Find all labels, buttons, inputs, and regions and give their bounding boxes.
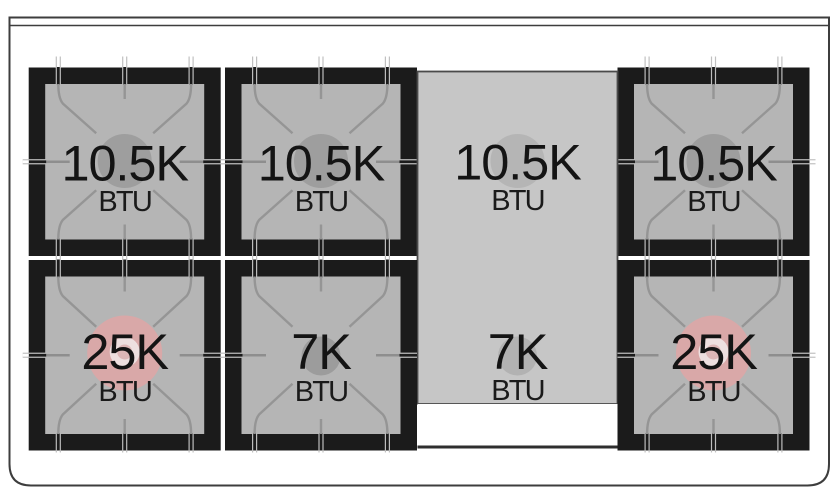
- svg-text:7K: 7K: [488, 323, 549, 380]
- svg-text:BTU: BTU: [98, 376, 151, 408]
- svg-text:7K: 7K: [291, 323, 352, 380]
- svg-text:10.5K: 10.5K: [61, 135, 189, 192]
- svg-text:BTU: BTU: [491, 185, 544, 217]
- svg-text:BTU: BTU: [491, 375, 544, 407]
- svg-text:10.5K: 10.5K: [650, 135, 778, 192]
- svg-text:BTU: BTU: [295, 376, 348, 408]
- svg-text:25K: 25K: [81, 323, 169, 380]
- svg-text:BTU: BTU: [687, 186, 740, 218]
- svg-text:10.5K: 10.5K: [454, 134, 582, 191]
- svg-text:BTU: BTU: [687, 376, 740, 408]
- svg-text:BTU: BTU: [98, 186, 151, 218]
- svg-text:10.5K: 10.5K: [258, 135, 386, 192]
- svg-text:25K: 25K: [670, 323, 758, 380]
- svg-text:BTU: BTU: [295, 186, 348, 218]
